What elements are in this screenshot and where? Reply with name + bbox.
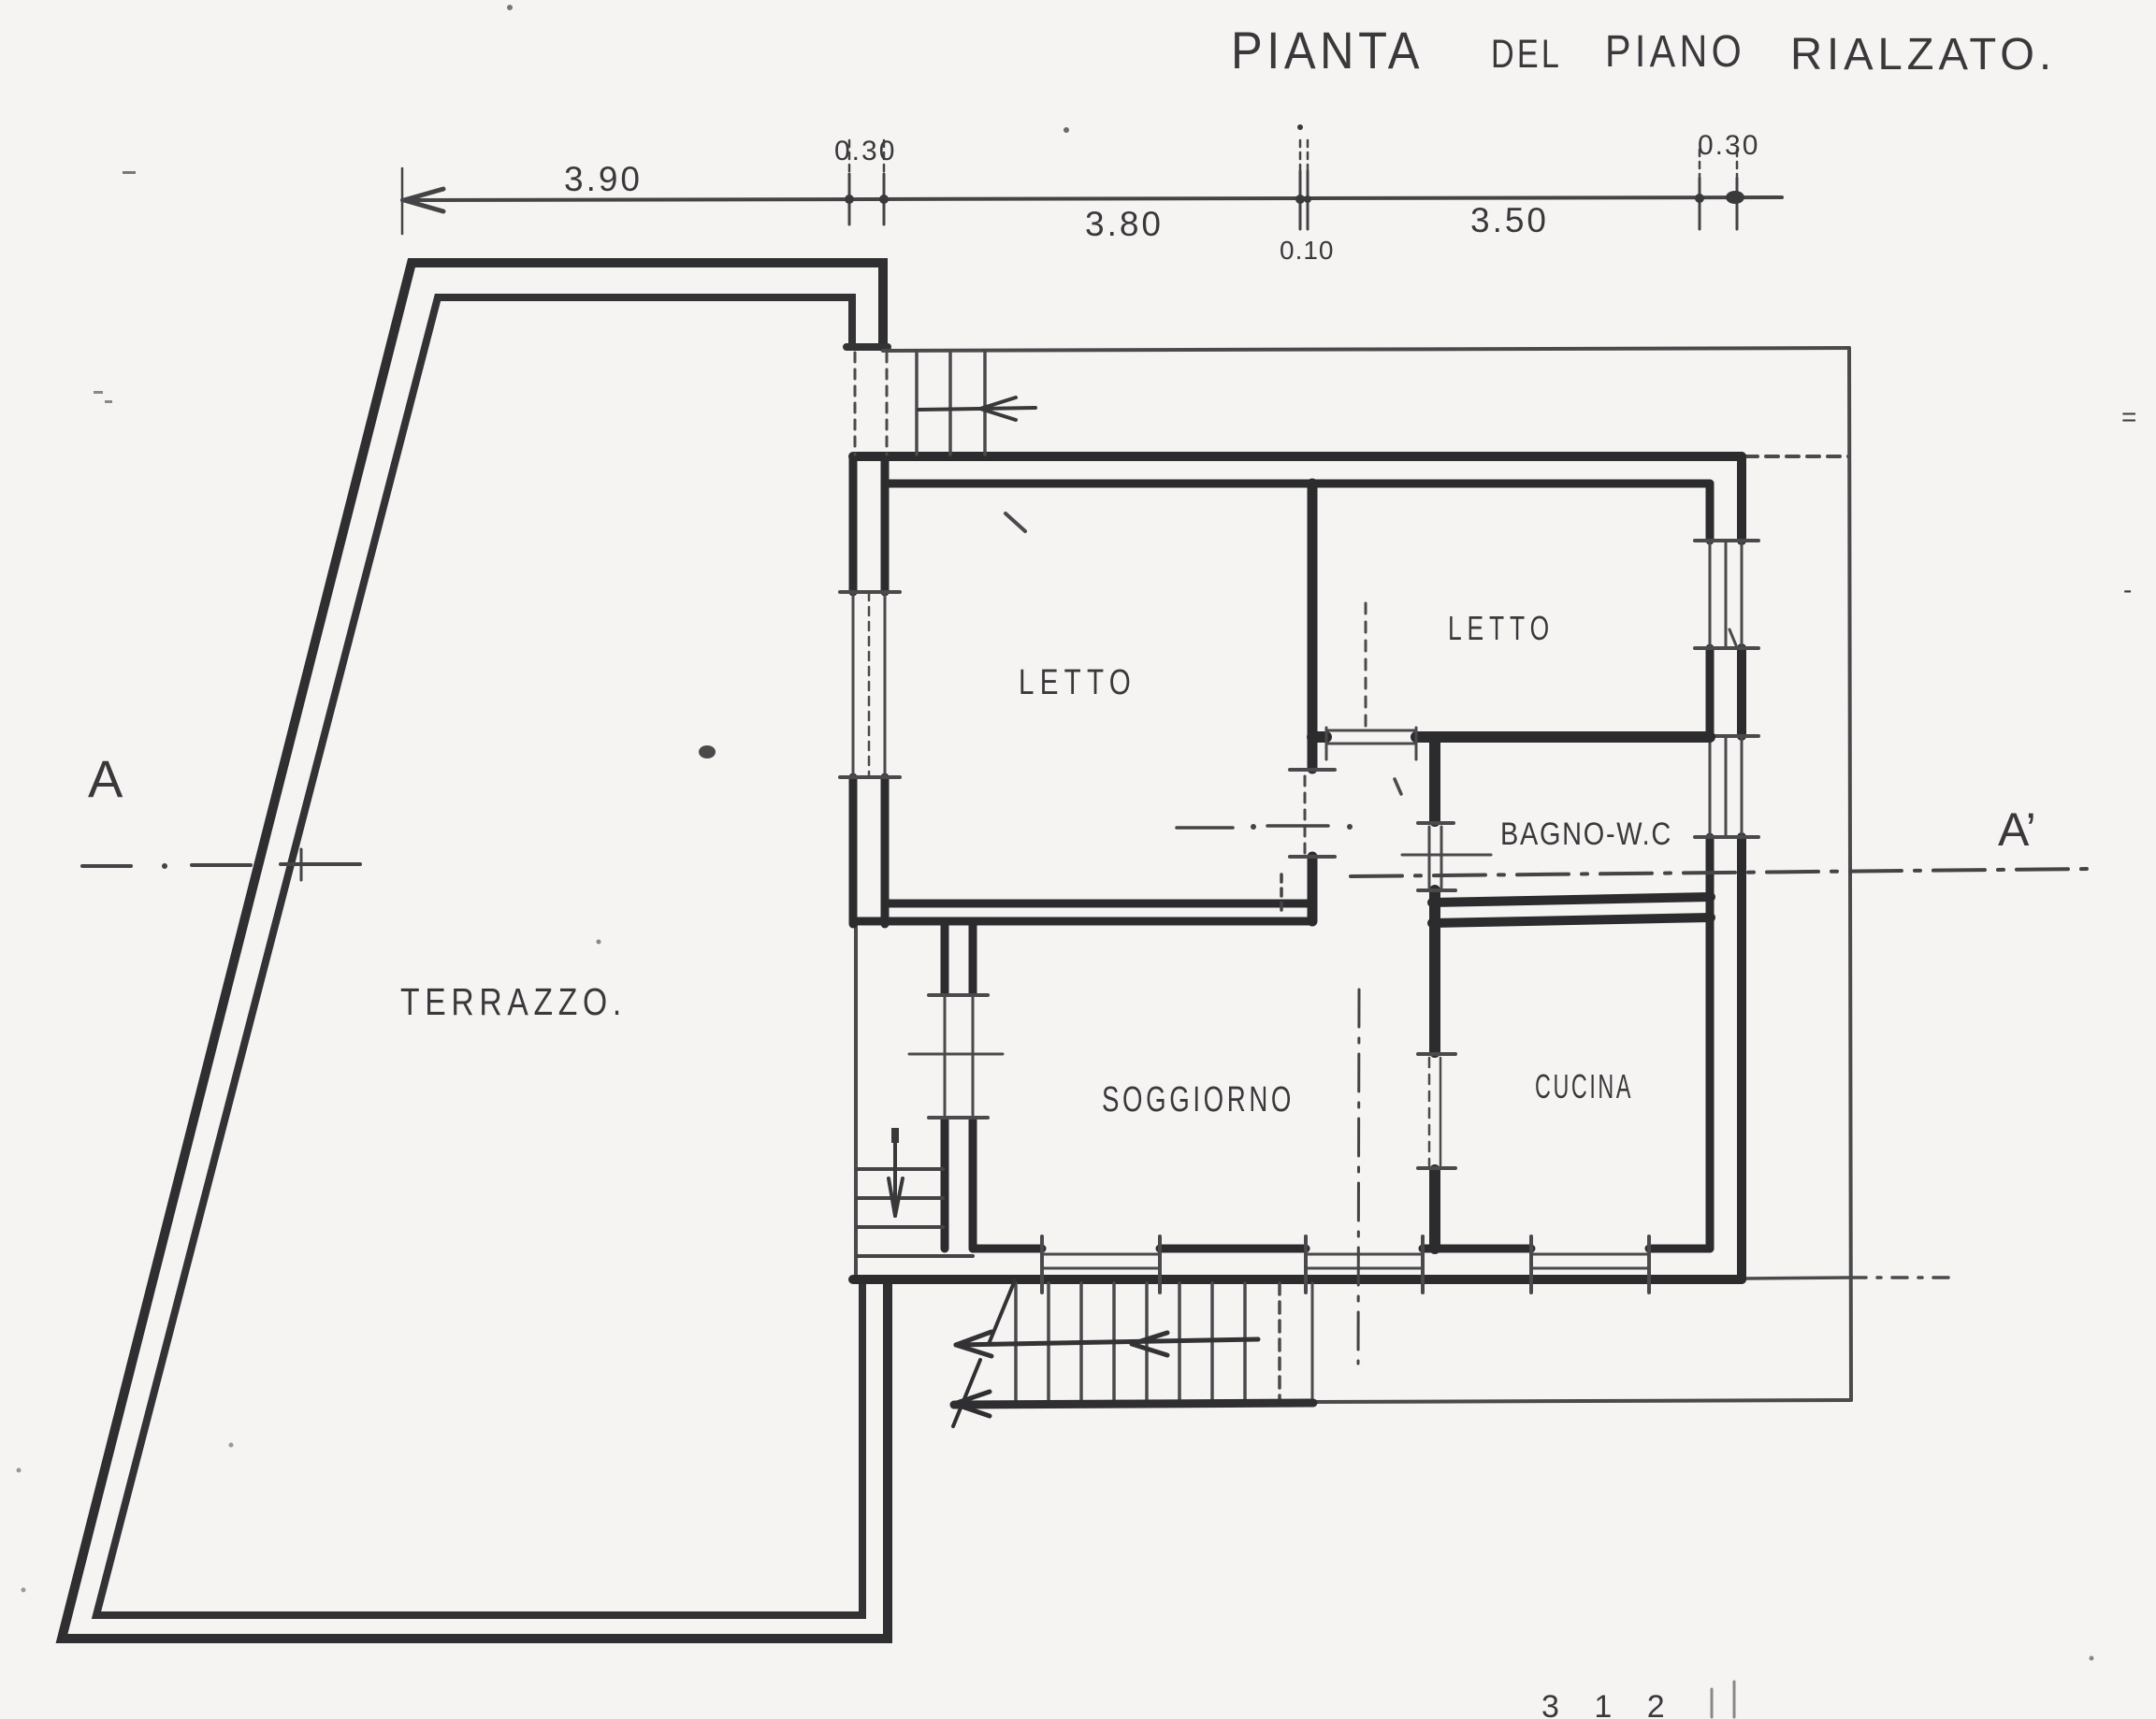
svg-text:A: A	[88, 749, 123, 808]
svg-text:RIALZATO.: RIALZATO.	[1790, 30, 2056, 79]
svg-text:3.80: 3.80	[1085, 205, 1164, 243]
svg-text:LETTO: LETTO	[1019, 663, 1136, 702]
svg-text:=: =	[2121, 402, 2136, 431]
svg-text:0.10: 0.10	[1280, 236, 1335, 265]
svg-text:PIANO: PIANO	[1605, 27, 1745, 77]
svg-text:0.30: 0.30	[1698, 130, 1759, 161]
svg-text:TERRAZZO.: TERRAZZO.	[400, 980, 627, 1023]
svg-text:3.50: 3.50	[1470, 201, 1549, 239]
svg-text:CUCINA: CUCINA	[1535, 1067, 1633, 1105]
svg-text:SOGGIORNO: SOGGIORNO	[1102, 1080, 1295, 1120]
svg-text:0.30: 0.30	[834, 136, 896, 166]
svg-text:3 1 2: 3 1 2	[1541, 1689, 1678, 1719]
svg-text:3.90: 3.90	[564, 160, 643, 198]
svg-text:LETTO: LETTO	[1448, 609, 1555, 647]
svg-text:A’: A’	[1998, 803, 2036, 856]
svg-text:PIANTA: PIANTA	[1231, 21, 1424, 79]
svg-text:BAGNO-W.C: BAGNO-W.C	[1500, 816, 1672, 852]
svg-text:-: -	[2123, 575, 2132, 604]
svg-text:DEL: DEL	[1491, 32, 1562, 77]
